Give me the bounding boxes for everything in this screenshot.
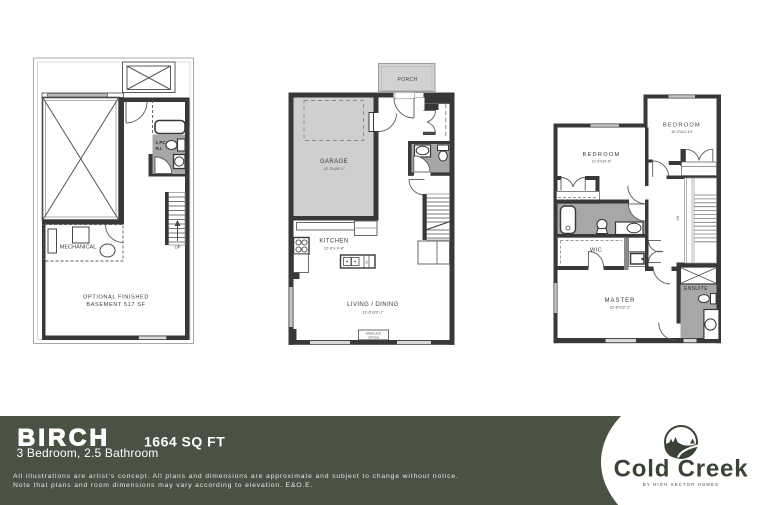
svg-text:All illustrations are artist's: All illustrations are artist's concept. … (13, 473, 459, 480)
svg-text:BY HIGH SECTOR HOMES: BY HIGH SECTOR HOMES (643, 482, 719, 487)
svg-text:MECHANICAL: MECHANICAL (60, 245, 97, 251)
svg-text:10'-0"x12'-10": 10'-0"x12'-10" (671, 130, 693, 134)
svg-text:1 PC: 1 PC (156, 140, 167, 145)
svg-text:OPTION: OPTION (368, 335, 379, 339)
svg-text:PORCH: PORCH (397, 77, 417, 83)
svg-text:BEDROOM: BEDROOM (582, 152, 620, 158)
svg-text:GARAGE: GARAGE (320, 159, 348, 165)
svg-text:3 Bedroom, 2.5 Bathroom: 3 Bedroom, 2.5 Bathroom (17, 446, 159, 460)
svg-text:KITCHEN: KITCHEN (319, 239, 348, 245)
svg-text:BEDROOM: BEDROOM (663, 123, 701, 129)
svg-text:ENSUITE: ENSUITE (684, 286, 708, 292)
svg-text:LIVING / DINING: LIVING / DINING (347, 302, 399, 308)
svg-text:BASEMENT 517 SF: BASEMENT 517 SF (86, 302, 145, 308)
svg-text:OPTIONAL FINISHED: OPTIONAL FINISHED (83, 295, 149, 301)
svg-text:Note that plans and room dimen: Note that plans and room dimensions may … (13, 482, 313, 489)
svg-text:11'-6"x23'-1": 11'-6"x23'-1" (363, 311, 385, 315)
svg-text:R.I.: R.I. (156, 146, 163, 151)
svg-text:MASTER: MASTER (604, 298, 635, 304)
svg-text:UP: UP (174, 245, 180, 250)
svg-text:12'-0"x 9'-8": 12'-0"x 9'-8" (324, 247, 345, 251)
svg-text:11'-0"x10'-6": 11'-0"x10'-6" (592, 160, 612, 164)
svg-text:12'-3"x20'-1": 12'-3"x20'-1" (323, 167, 345, 171)
svg-text:DN: DN (676, 215, 680, 220)
svg-text:Cold Creek: Cold Creek (614, 456, 749, 483)
svg-text:15'-8"x12'-2": 15'-8"x12'-2" (609, 306, 631, 310)
svg-text:WIC: WIC (590, 248, 602, 254)
